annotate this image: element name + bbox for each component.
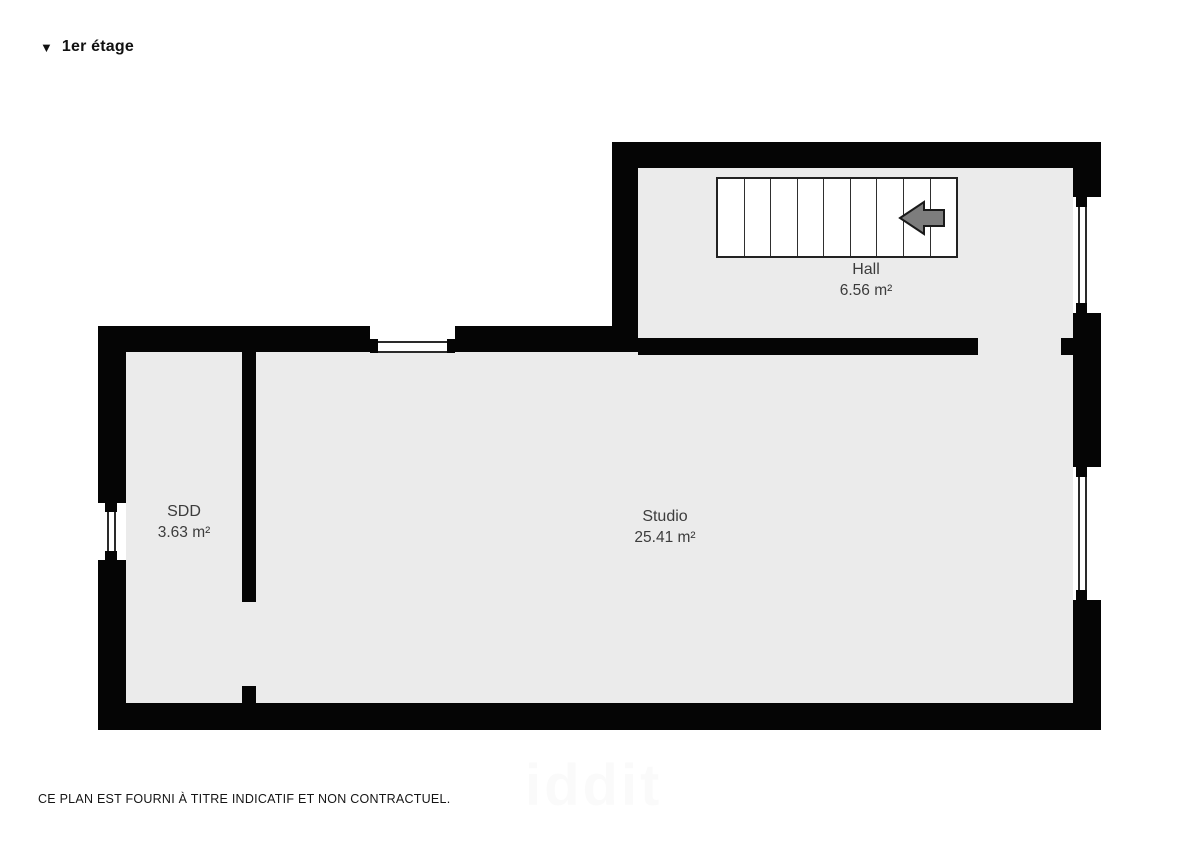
floor-section-toggle[interactable]: ▼ 1er étage (40, 38, 134, 56)
room-label-studio: Studio 25.41 m² (585, 506, 745, 548)
floor-title-label: 1er étage (62, 38, 134, 56)
stair-tread (771, 179, 798, 256)
wall-bottom (98, 703, 1101, 730)
window-hall-right (1073, 197, 1101, 313)
wall-sdd-studio-divider-stub (242, 686, 256, 703)
wall-hall-studio-divider-stub (1061, 338, 1073, 355)
stairs-direction-arrow (896, 199, 948, 237)
room-area: 6.56 m² (786, 280, 946, 301)
wall-hall-top (612, 142, 1101, 168)
stair-tread (824, 179, 851, 256)
room-area: 25.41 m² (585, 527, 745, 548)
wall-right-upper (1073, 142, 1101, 197)
floor-plan-page: ▼ 1er étage (0, 0, 1200, 848)
wall-hall-left (612, 142, 638, 352)
window-studio-right (1073, 467, 1101, 600)
wall-left-upper (98, 326, 126, 503)
stair-tread (745, 179, 772, 256)
wall-sdd-studio-divider (242, 352, 256, 602)
wall-main-top-left-segment (98, 326, 370, 352)
room-name: Studio (585, 506, 745, 527)
window-main-top (370, 325, 455, 353)
room-label-sdd: SDD 3.63 m² (104, 501, 264, 543)
stair-tread (851, 179, 878, 256)
disclaimer-text: CE PLAN EST FOURNI À TITRE INDICATIF ET … (38, 792, 450, 806)
room-area: 3.63 m² (104, 522, 264, 543)
wall-main-top-right-segment (455, 326, 638, 352)
room-label-hall: Hall 6.56 m² (786, 259, 946, 301)
stair-tread (798, 179, 825, 256)
wall-hall-studio-divider (638, 338, 978, 355)
watermark: iddit (525, 752, 662, 819)
stair-tread (718, 179, 745, 256)
room-name: Hall (786, 259, 946, 280)
room-name: SDD (104, 501, 264, 522)
wall-right-middle (1073, 313, 1101, 467)
collapse-triangle-icon: ▼ (40, 41, 53, 54)
